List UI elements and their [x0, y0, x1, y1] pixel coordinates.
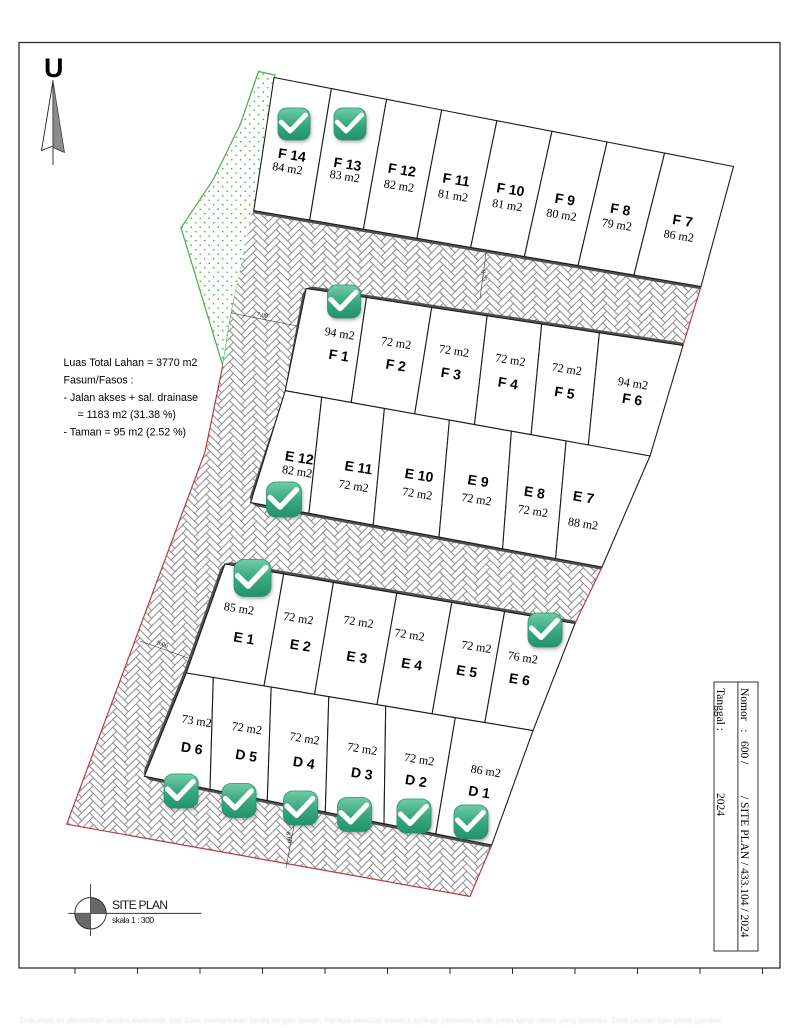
svg-text:SITE PLAN: SITE PLAN — [112, 898, 168, 912]
svg-text:Tanggal :: Tanggal : — [714, 688, 726, 731]
svg-text:F 3: F 3 — [440, 364, 463, 383]
svg-text:E 9: E 9 — [467, 471, 490, 490]
svg-text:E 8: E 8 — [523, 483, 546, 502]
svg-text:F 6: F 6 — [621, 390, 644, 409]
svg-text:Nomor : 600 / /: Nomor : 600 / / SITE PLAN / 433.104 / 20… — [738, 688, 750, 938]
svg-text:U: U — [44, 53, 64, 83]
svg-text:E 7: E 7 — [572, 487, 595, 506]
svg-text:Fasum/Fasos :: Fasum/Fasos : — [64, 375, 134, 387]
svg-text:Luas Total Lahan = 3770 m2: Luas Total Lahan = 3770 m2 — [64, 357, 198, 369]
svg-text:E 3: E 3 — [345, 648, 368, 667]
svg-text:- Jalan akses + sal. drainase: - Jalan akses + sal. drainase — [64, 392, 199, 404]
svg-text:F 5: F 5 — [553, 383, 576, 402]
svg-text:E 4: E 4 — [400, 654, 423, 673]
svg-text:Dokumen ini diterbitkan secara: Dokumen ini diterbitkan secara elektroni… — [20, 1016, 723, 1025]
svg-text:E 5: E 5 — [455, 662, 478, 681]
svg-text:F 2: F 2 — [385, 356, 408, 375]
svg-text:F 1: F 1 — [328, 346, 351, 365]
svg-text:D 6: D 6 — [180, 738, 204, 757]
svg-text:- Taman = 95 m2 (2.52 %): - Taman = 95 m2 (2.52 %) — [64, 427, 187, 439]
svg-text:F 4: F 4 — [497, 374, 520, 393]
svg-text:D 2: D 2 — [404, 771, 428, 790]
svg-text:D 4: D 4 — [292, 753, 316, 772]
svg-text:D 3: D 3 — [350, 764, 374, 783]
svg-text:= 1183 m2 (31.38 %): = 1183 m2 (31.38 %) — [78, 409, 176, 421]
svg-text:2024: 2024 — [714, 793, 726, 816]
svg-text:skala 1 : 300: skala 1 : 300 — [112, 915, 154, 925]
svg-text:F 9: F 9 — [554, 190, 577, 209]
svg-text:D 5: D 5 — [234, 746, 258, 765]
svg-text:E 2: E 2 — [289, 636, 312, 655]
svg-text:E 6: E 6 — [508, 670, 531, 689]
svg-text:E 1: E 1 — [232, 628, 255, 647]
svg-text:D 1: D 1 — [467, 782, 491, 801]
